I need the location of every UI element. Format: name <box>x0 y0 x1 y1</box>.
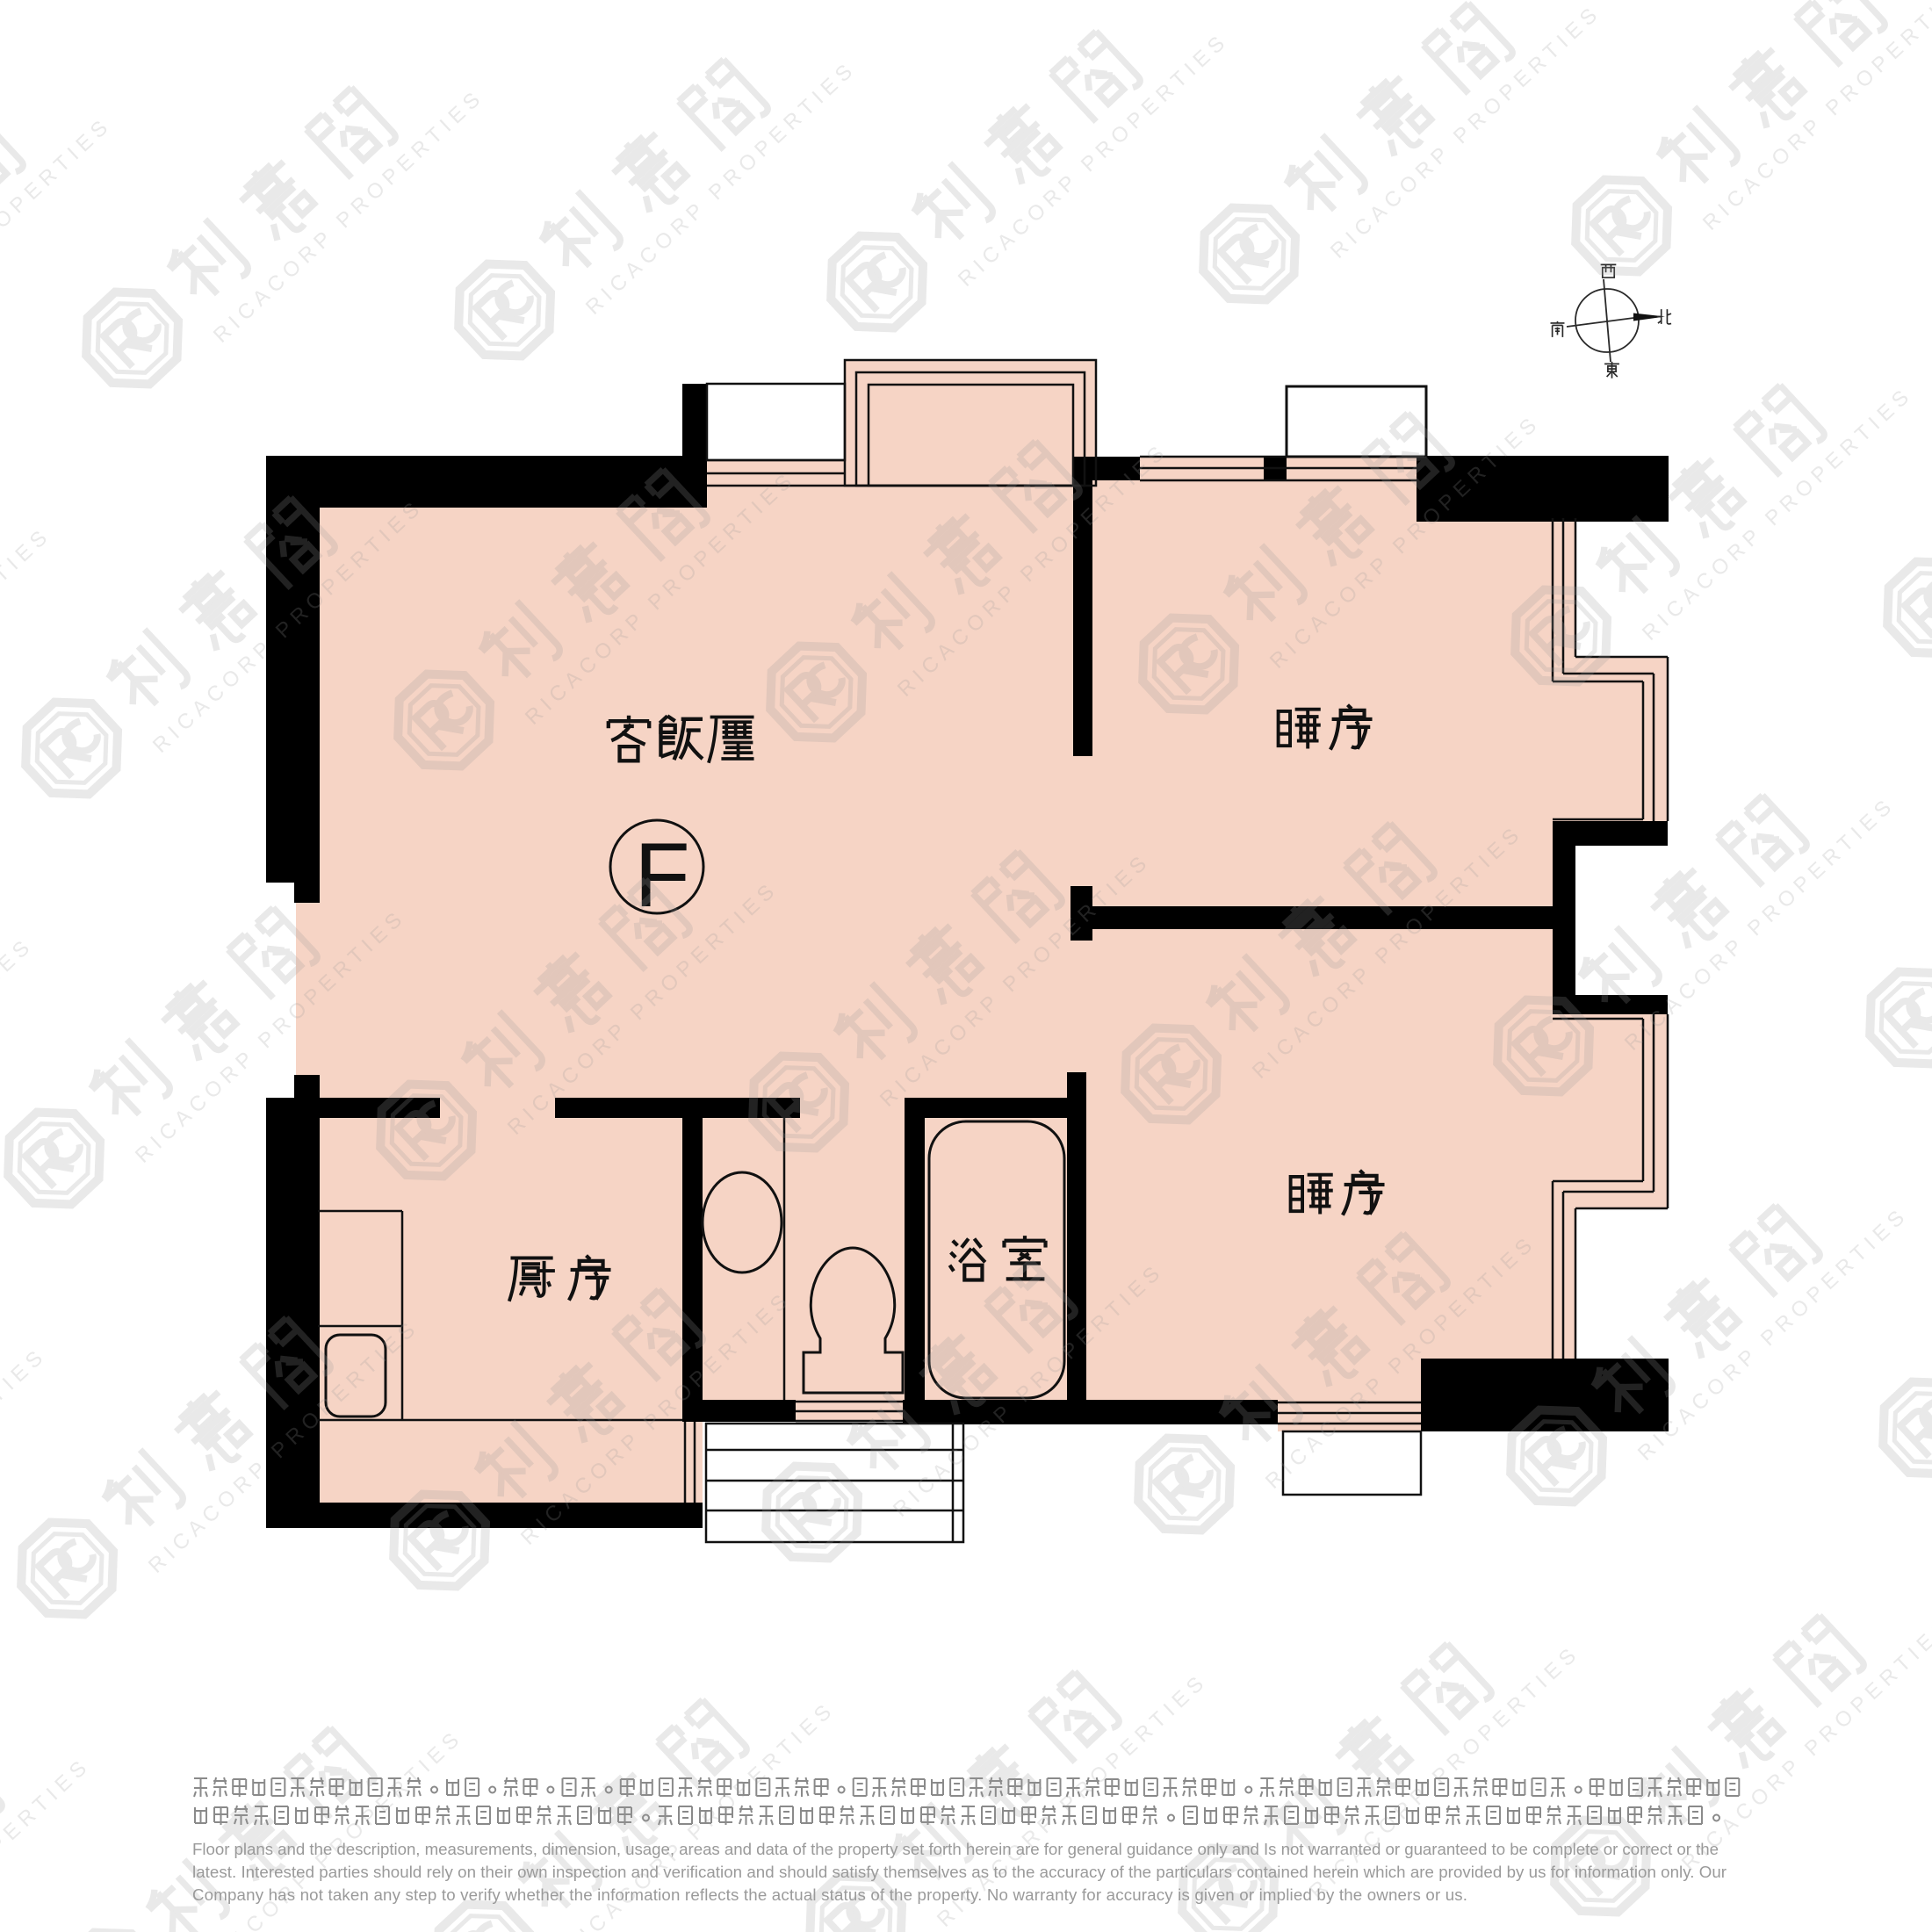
svg-text:F: F <box>634 825 690 926</box>
svg-text:latest. Interested parties sho: latest. Interested parties should rely o… <box>192 1863 1727 1881</box>
svg-text:Floor plans and the descriptio: Floor plans and the description, measure… <box>192 1840 1719 1858</box>
